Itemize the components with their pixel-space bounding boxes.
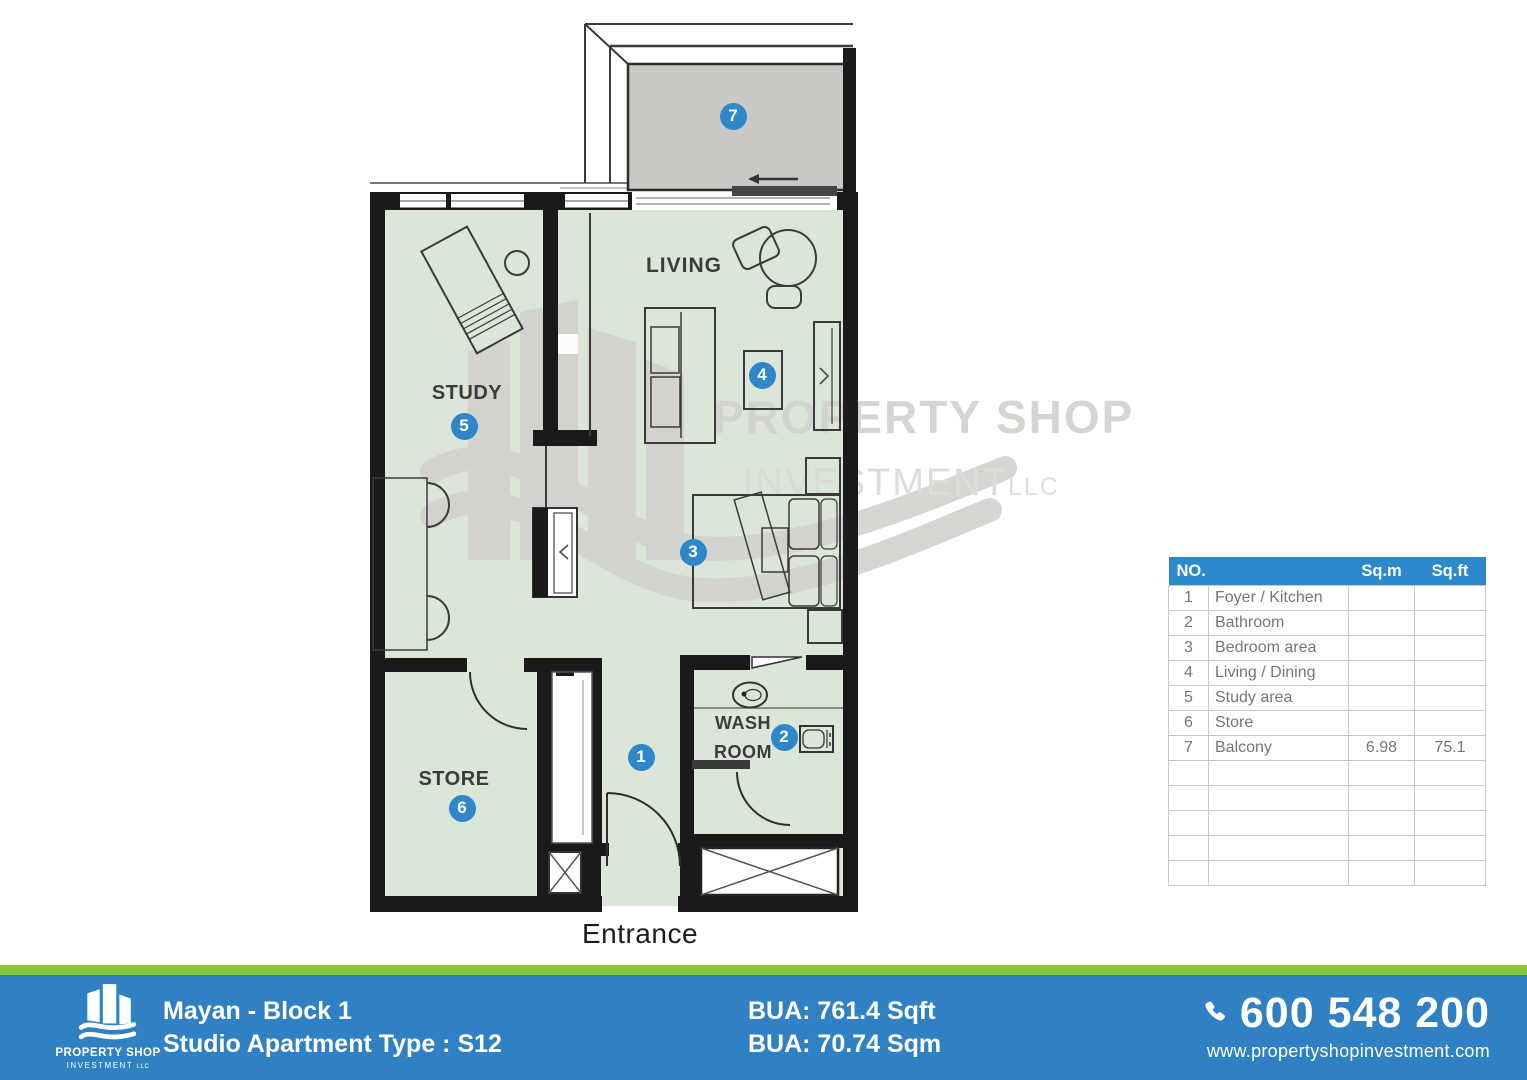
- sliding-door-panel: [732, 186, 837, 196]
- bua-sqft: BUA: 761.4 Sqft: [748, 995, 941, 1028]
- table-cell: [1349, 586, 1415, 611]
- table-cell: 3: [1169, 636, 1209, 661]
- phone-icon: [1200, 999, 1230, 1029]
- area-table: NO. Sq.m Sq.ft 1Foyer / Kitchen2Bathroom…: [1168, 557, 1486, 886]
- table-cell: Bedroom area: [1209, 636, 1349, 661]
- table-cell: 2: [1169, 611, 1209, 636]
- table-cell: [1415, 636, 1486, 661]
- footer-green-stripe: [0, 965, 1527, 975]
- table-cell: 5: [1169, 686, 1209, 711]
- table-cell: [1169, 786, 1209, 811]
- table-cell: [1209, 786, 1349, 811]
- table-cell: 7: [1169, 736, 1209, 761]
- project-name: Mayan - Block 1: [163, 995, 502, 1028]
- faucet-dot: [742, 692, 747, 697]
- table-row: 7Balcony6.9875.1: [1169, 736, 1486, 761]
- table-cell: Foyer / Kitchen: [1209, 586, 1349, 611]
- entrance-label: Entrance: [570, 918, 710, 950]
- table-cell: [1415, 761, 1486, 786]
- phone-line: 600 548 200: [1200, 989, 1490, 1038]
- wardrobe: [533, 508, 577, 597]
- phone-number: 600 548 200: [1240, 989, 1490, 1038]
- table-row-empty: [1169, 836, 1486, 861]
- table-cell: [1169, 836, 1209, 861]
- table-cell: [1349, 836, 1415, 861]
- project-title-block: Mayan - Block 1 Studio Apartment Type : …: [163, 995, 502, 1061]
- table-cell: Store: [1209, 711, 1349, 736]
- floorplan-page: PROPERTY SHOP INVESTMENT LLC: [0, 0, 1527, 1080]
- table-row: 3Bedroom area: [1169, 636, 1486, 661]
- table-cell: [1209, 761, 1349, 786]
- buildings-waves-icon: [72, 981, 144, 1041]
- table-cell: [1349, 786, 1415, 811]
- table-cell: [1349, 686, 1415, 711]
- wall-store-left: [385, 658, 467, 672]
- wall-bottom-left: [370, 896, 602, 912]
- room-marker-4: 4: [749, 362, 776, 389]
- floor-plan-svg: PROPERTY SHOP INVESTMENT LLC: [0, 0, 1527, 1080]
- study-label: STUDY: [427, 382, 507, 405]
- wall-stub: [533, 430, 597, 446]
- table-row: 6Store: [1169, 711, 1486, 736]
- table-cell: Balcony: [1209, 736, 1349, 761]
- table-cell: 75.1: [1415, 736, 1486, 761]
- wall-washroom-bottom: [680, 834, 858, 848]
- contact-block: 600 548 200 www.propertyshopinvestment.c…: [1200, 989, 1490, 1062]
- table-cell: [1349, 661, 1415, 686]
- wall-bottom-right: [678, 896, 858, 912]
- table-cell: Study area: [1209, 686, 1349, 711]
- table-row-empty: [1169, 761, 1486, 786]
- table-cell: [1415, 786, 1486, 811]
- table-cell: [1415, 836, 1486, 861]
- table-cell: [1349, 761, 1415, 786]
- room-marker-2: 2: [771, 724, 798, 751]
- bua-sqm: BUA: 70.74 Sqm: [748, 1028, 941, 1061]
- table-cell: [1415, 811, 1486, 836]
- wall-study-divider: [543, 210, 558, 436]
- wall-closet-right: [592, 658, 602, 843]
- table-cell: [1349, 811, 1415, 836]
- table-cell: [1169, 761, 1209, 786]
- wall-washroom-left: [680, 655, 694, 847]
- watermark-suffix: LLC: [1008, 473, 1060, 501]
- table-cell: 6.98: [1349, 736, 1415, 761]
- table-cell: [1415, 586, 1486, 611]
- table-cell: [1415, 711, 1486, 736]
- watermark-subtitle: INVESTMENT: [743, 462, 1008, 504]
- col-header-no: NO.: [1169, 557, 1349, 586]
- room-marker-3: 3: [680, 539, 707, 566]
- col-header-sqm: Sq.m: [1349, 557, 1415, 586]
- wall-washroom-top-a: [694, 655, 750, 670]
- watermark-title: PROPERTY SHOP: [713, 391, 1134, 443]
- table-cell: 4: [1169, 661, 1209, 686]
- room-marker-6: 6: [449, 795, 476, 822]
- table-header-row: NO. Sq.m Sq.ft: [1169, 557, 1486, 586]
- table-cell: [1209, 836, 1349, 861]
- table-row: 4Living / Dining: [1169, 661, 1486, 686]
- table-cell: Bathroom: [1209, 611, 1349, 636]
- store-label: STORE: [414, 768, 494, 791]
- table-row-empty: [1169, 811, 1486, 836]
- table-row-empty: [1169, 786, 1486, 811]
- room-marker-7: 7: [720, 103, 747, 130]
- apartment-type: Studio Apartment Type : S12: [163, 1028, 502, 1061]
- table-cell: [1415, 611, 1486, 636]
- table-cell: [1349, 636, 1415, 661]
- table-cell: [1209, 861, 1349, 886]
- wall-washroom-top-b: [806, 655, 843, 670]
- bua-block: BUA: 761.4 Sqft BUA: 70.74 Sqm: [748, 995, 941, 1061]
- website: www.propertyshopinvestment.com: [1200, 1041, 1490, 1062]
- wall-closet-left: [537, 672, 552, 843]
- table-cell: [1209, 811, 1349, 836]
- table-cell: [1169, 811, 1209, 836]
- table-row: 5Study area: [1169, 686, 1486, 711]
- table-cell: [1349, 711, 1415, 736]
- hall-closet: [552, 672, 592, 843]
- col-header-sqft: Sq.ft: [1415, 557, 1486, 586]
- room-marker-1: 1: [628, 744, 655, 771]
- room-marker-5: 5: [451, 413, 478, 440]
- table-cell: [1349, 611, 1415, 636]
- table-cell: 1: [1169, 586, 1209, 611]
- table-row: 1Foyer / Kitchen: [1169, 586, 1486, 611]
- logo-subname: INVESTMENT LLC: [28, 1061, 188, 1070]
- table-cell: [1169, 861, 1209, 886]
- table-cell: [1415, 686, 1486, 711]
- table-row: 2Bathroom: [1169, 611, 1486, 636]
- table-cell: [1349, 861, 1415, 886]
- wall-right: [843, 192, 858, 912]
- table-cell: 6: [1169, 711, 1209, 736]
- table-cell: Living / Dining: [1209, 661, 1349, 686]
- table-row-empty: [1169, 861, 1486, 886]
- table-cell: [1415, 861, 1486, 886]
- table-cell: [1415, 661, 1486, 686]
- balcony: [370, 24, 856, 192]
- living-label: LIVING: [644, 254, 724, 278]
- footer-bar: PROPERTY SHOP INVESTMENT LLC Mayan - Blo…: [0, 975, 1527, 1080]
